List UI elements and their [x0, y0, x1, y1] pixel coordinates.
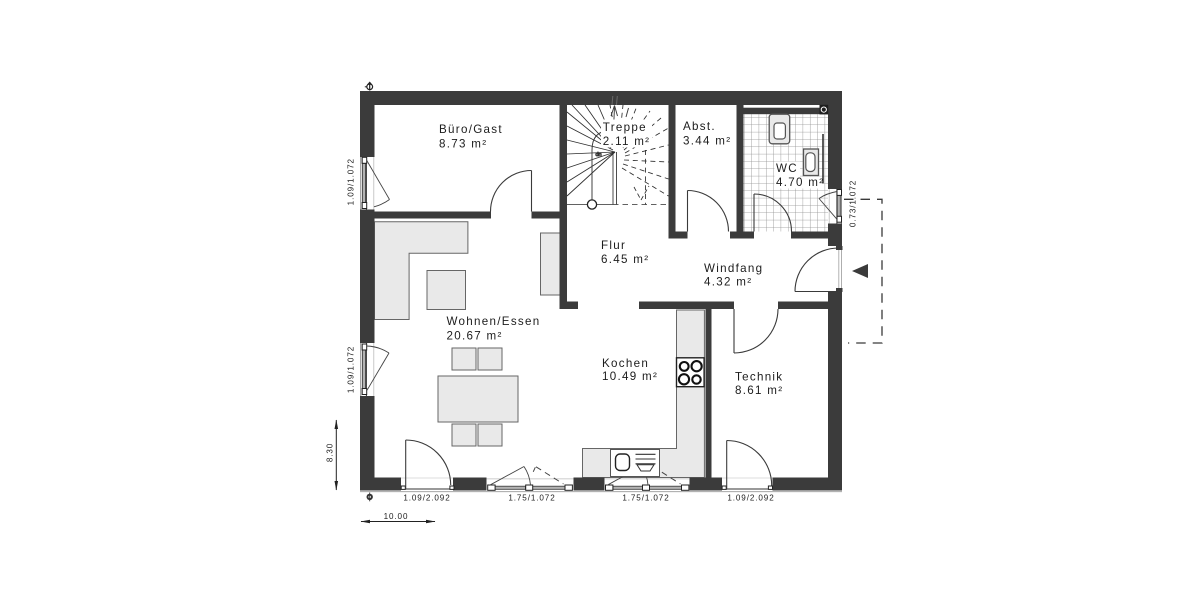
svg-text:Wohnen/Essen: Wohnen/Essen — [447, 315, 541, 328]
svg-text:Kochen: Kochen — [602, 357, 649, 370]
svg-text:10.49 m²: 10.49 m² — [602, 370, 658, 383]
svg-text:1.09/1.072: 1.09/1.072 — [347, 158, 356, 205]
svg-text:Büro/Gast: Büro/Gast — [439, 123, 503, 136]
svg-text:3.44 m²: 3.44 m² — [683, 135, 731, 148]
svg-text:WC: WC — [776, 162, 798, 175]
svg-text:2.11 m²: 2.11 m² — [603, 135, 651, 148]
svg-text:8.73 m²: 8.73 m² — [439, 138, 487, 151]
svg-text:Technik: Technik — [735, 371, 783, 384]
svg-text:8.30: 8.30 — [325, 443, 334, 462]
svg-text:1.09/1.072: 1.09/1.072 — [347, 346, 356, 393]
svg-text:1.75/1.072: 1.75/1.072 — [622, 494, 669, 503]
svg-text:Flur: Flur — [601, 239, 626, 252]
svg-text:1.75/1.072: 1.75/1.072 — [508, 494, 555, 503]
svg-text:4.32 m²: 4.32 m² — [704, 276, 752, 289]
svg-text:10.00: 10.00 — [384, 512, 409, 521]
svg-text:1.09/2.092: 1.09/2.092 — [727, 494, 774, 503]
svg-text:0.73/1.072: 0.73/1.072 — [849, 180, 858, 227]
svg-text:4.70 m²: 4.70 m² — [776, 176, 824, 189]
svg-text:20.67 m²: 20.67 m² — [447, 330, 503, 343]
svg-text:8.61 m²: 8.61 m² — [735, 384, 783, 397]
svg-text:Windfang: Windfang — [704, 262, 763, 275]
svg-text:Abst.: Abst. — [683, 120, 716, 133]
svg-text:6.45 m²: 6.45 m² — [601, 253, 649, 266]
svg-text:dn: dn — [596, 152, 602, 158]
svg-text:1.09/2.092: 1.09/2.092 — [403, 494, 450, 503]
svg-text:Treppe: Treppe — [603, 121, 647, 134]
